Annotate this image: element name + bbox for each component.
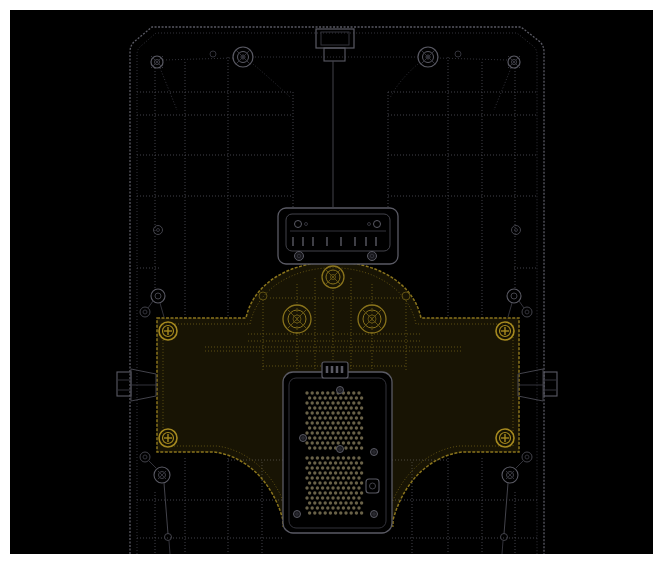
perforation-dot [337, 411, 340, 414]
perforation-dot [316, 411, 319, 414]
perforation-dot [316, 466, 319, 469]
perforation-dot [339, 461, 342, 464]
perforation-dot [329, 436, 332, 439]
perforation-dot [357, 496, 360, 499]
perforation-dot [355, 426, 358, 429]
perforation-dot [342, 486, 345, 489]
cad-wireframe-drawing[interactable] [0, 0, 653, 562]
perforation-dot [350, 501, 353, 504]
perforation-dot [360, 436, 363, 439]
perforation-dot [331, 486, 334, 489]
perforation-dot [324, 471, 327, 474]
perforation-dot [316, 401, 319, 404]
grille-screw [300, 435, 307, 442]
perforation-dot [313, 446, 316, 449]
perforation-dot [308, 416, 311, 419]
perforation-dot [342, 506, 345, 509]
perforation-dot [305, 431, 308, 434]
perforation-dot [360, 416, 363, 419]
perforation-dot [321, 401, 324, 404]
perforation-dot [357, 441, 360, 444]
perforation-dot [313, 471, 316, 474]
perforation-dot [357, 486, 360, 489]
perforation-dot [339, 436, 342, 439]
perforation-dot [305, 456, 308, 459]
perforation-dot [321, 496, 324, 499]
perforation-dot [342, 431, 345, 434]
perforation-dot [308, 461, 311, 464]
perforation-dot [339, 491, 342, 494]
perforation-dot [334, 491, 337, 494]
perforation-dot [331, 466, 334, 469]
perforation-dot [311, 506, 314, 509]
terminal-screw [295, 252, 304, 261]
aux-connector [366, 479, 379, 493]
perforation-dot [337, 421, 340, 424]
perforation-dot [334, 511, 337, 514]
perforation-dot [347, 466, 350, 469]
perforation-dot [347, 411, 350, 414]
perforation-dot [347, 486, 350, 489]
perforation-dot [311, 476, 314, 479]
perforation-dot [308, 471, 311, 474]
perforation-dot [331, 456, 334, 459]
perforation-dot [318, 501, 321, 504]
perforation-dot [311, 391, 314, 394]
perforation-dot [324, 416, 327, 419]
perforation-dot [331, 411, 334, 414]
perforation-dot [326, 401, 329, 404]
perforation-dot [347, 456, 350, 459]
perforation-dot [355, 416, 358, 419]
perforation-dot [331, 476, 334, 479]
perforation-dot [352, 441, 355, 444]
perforation-dot [305, 486, 308, 489]
perforation-dot [316, 431, 319, 434]
perforation-dot [357, 391, 360, 394]
perforation-dot [324, 396, 327, 399]
perforation-dot [329, 461, 332, 464]
perforation-dot [305, 506, 308, 509]
perforation-dot [329, 481, 332, 484]
perforation-dot [321, 391, 324, 394]
perforation-dot [344, 426, 347, 429]
perforation-dot [350, 396, 353, 399]
perforation-dot [355, 481, 358, 484]
terminal-screw [368, 252, 377, 261]
grille-screw [337, 387, 344, 394]
perforation-dot [339, 396, 342, 399]
perforation-dot [308, 406, 311, 409]
perforation-dot [360, 406, 363, 409]
perforation-dot [324, 511, 327, 514]
perforation-dot [321, 506, 324, 509]
perforation-dot [313, 416, 316, 419]
perforation-dot [347, 441, 350, 444]
perforation-dot [350, 481, 353, 484]
perforation-dot [313, 491, 316, 494]
perforation-dot [331, 506, 334, 509]
perforation-dot [318, 426, 321, 429]
perforation-dot [342, 411, 345, 414]
perforation-dot [331, 421, 334, 424]
perforation-dot [344, 406, 347, 409]
perforation-dot [360, 501, 363, 504]
perforation-dot [337, 506, 340, 509]
perforation-dot [311, 431, 314, 434]
perforation-dot [334, 406, 337, 409]
perforation-dot [331, 401, 334, 404]
perforation-dot [326, 391, 329, 394]
perforation-dot [313, 426, 316, 429]
perforation-dot [352, 456, 355, 459]
perforation-dot [311, 401, 314, 404]
perforation-dot [326, 431, 329, 434]
perforation-dot [313, 396, 316, 399]
perforation-dot [350, 406, 353, 409]
perforation-dot [329, 511, 332, 514]
perforation-dot [352, 506, 355, 509]
perforation-dot [308, 396, 311, 399]
perforation-dot [357, 411, 360, 414]
perforation-dot [360, 471, 363, 474]
perforation-dot [308, 501, 311, 504]
perforation-dot [311, 486, 314, 489]
perforation-dot [357, 421, 360, 424]
perforation-dot [326, 456, 329, 459]
perforation-dot [318, 491, 321, 494]
perforation-dot [357, 476, 360, 479]
perforation-dot [313, 511, 316, 514]
perforation-dot [316, 506, 319, 509]
perforation-dot [305, 496, 308, 499]
perforation-dot [355, 396, 358, 399]
perforation-dot [326, 506, 329, 509]
perforation-dot [329, 501, 332, 504]
perforation-dot [324, 446, 327, 449]
perforation-dot [316, 486, 319, 489]
perforation-dot [350, 511, 353, 514]
perforation-dot [339, 471, 342, 474]
perforation-dot [305, 441, 308, 444]
perforation-dot [316, 441, 319, 444]
perforation-dot [318, 471, 321, 474]
perforation-dot [334, 436, 337, 439]
perforation-dot [339, 426, 342, 429]
perforation-dot [313, 461, 316, 464]
perforation-dot [334, 396, 337, 399]
perforation-dot [352, 411, 355, 414]
perforation-dot [329, 471, 332, 474]
perforation-dot [339, 416, 342, 419]
perforation-dot [360, 426, 363, 429]
perforation-dot [347, 506, 350, 509]
perforation-dot [326, 466, 329, 469]
perforation-dot [329, 491, 332, 494]
perforation-dot [342, 421, 345, 424]
perforation-dot [352, 431, 355, 434]
perforation-dot [347, 421, 350, 424]
perforation-dot [334, 416, 337, 419]
perforation-dot [334, 501, 337, 504]
perforation-dot [337, 466, 340, 469]
perforation-dot [352, 486, 355, 489]
perforation-dot [326, 496, 329, 499]
perforation-dot [344, 481, 347, 484]
perforation-dot [326, 411, 329, 414]
perforation-dot [313, 501, 316, 504]
perforation-dot [355, 501, 358, 504]
perforation-dot [344, 491, 347, 494]
perforation-dot [316, 476, 319, 479]
perforation-dot [350, 471, 353, 474]
perforation-dot [324, 481, 327, 484]
perforation-dot [329, 446, 332, 449]
perforation-dot [344, 446, 347, 449]
perforation-dot [350, 416, 353, 419]
perforation-dot [321, 431, 324, 434]
perforation-dot [344, 501, 347, 504]
perforation-dot [318, 406, 321, 409]
perforation-dot [324, 406, 327, 409]
perforation-dot [321, 421, 324, 424]
perforation-dot [316, 421, 319, 424]
perforation-dot [357, 506, 360, 509]
perforation-dot [334, 471, 337, 474]
perforation-dot [316, 496, 319, 499]
perforation-dot [344, 436, 347, 439]
perforation-dot [344, 461, 347, 464]
perforation-dot [324, 426, 327, 429]
perforation-dot [326, 441, 329, 444]
perforation-dot [350, 461, 353, 464]
perforation-dot [360, 446, 363, 449]
perforation-dot [347, 401, 350, 404]
perforation-dot [331, 391, 334, 394]
perforation-dot [326, 476, 329, 479]
perforation-dot [337, 476, 340, 479]
perforation-dot [342, 441, 345, 444]
perforation-dot [347, 496, 350, 499]
perforation-dot [318, 396, 321, 399]
perforation-dot [305, 401, 308, 404]
perforation-dot [311, 456, 314, 459]
perforation-dot [337, 401, 340, 404]
perforation-dot [355, 511, 358, 514]
perforation-dot [321, 456, 324, 459]
perforation-dot [360, 461, 363, 464]
perforation-dot [350, 491, 353, 494]
perforation-dot [305, 466, 308, 469]
perforation-dot [308, 446, 311, 449]
perforation-dot [360, 481, 363, 484]
perforation-dot [342, 496, 345, 499]
perforation-dot [342, 466, 345, 469]
perforation-dot [329, 426, 332, 429]
perforation-dot [311, 466, 314, 469]
perforation-dot [352, 466, 355, 469]
perforation-dot [355, 436, 358, 439]
perforation-dot [355, 446, 358, 449]
image-viewer [0, 0, 653, 562]
perforation-dot [321, 476, 324, 479]
perforation-dot [324, 461, 327, 464]
perforation-dot [331, 441, 334, 444]
perforation-dot [334, 461, 337, 464]
perforation-dot [311, 421, 314, 424]
perforation-dot [344, 511, 347, 514]
perforation-dot [352, 401, 355, 404]
perforation-dot [355, 406, 358, 409]
perforation-dot [355, 461, 358, 464]
perforation-dot [316, 456, 319, 459]
perforation-dot [352, 391, 355, 394]
perforation-dot [355, 471, 358, 474]
perforation-dot [342, 476, 345, 479]
grille-screw [337, 446, 344, 453]
grille-screw [294, 511, 301, 518]
perforation-dot [339, 481, 342, 484]
perforation-dot [339, 406, 342, 409]
perforation-dot [334, 481, 337, 484]
perforation-dot [331, 431, 334, 434]
perforation-dot [305, 421, 308, 424]
perforation-dot [308, 491, 311, 494]
perforation-dot [352, 496, 355, 499]
perforation-dot [350, 426, 353, 429]
perforation-dot [344, 471, 347, 474]
perforation-dot [344, 416, 347, 419]
perforation-dot [352, 476, 355, 479]
perforation-dot [308, 511, 311, 514]
perforation-dot [318, 446, 321, 449]
perforation-dot [329, 396, 332, 399]
perforation-dot [324, 436, 327, 439]
perforation-dot [337, 431, 340, 434]
perforation-dot [308, 436, 311, 439]
perforation-dot [347, 476, 350, 479]
perforation-dot [357, 456, 360, 459]
perforation-dot [321, 466, 324, 469]
perforation-dot [337, 496, 340, 499]
perforation-dot [311, 441, 314, 444]
perforation-dot [339, 501, 342, 504]
perforation-dot [318, 461, 321, 464]
perforation-dot [360, 491, 363, 494]
perforation-dot [326, 421, 329, 424]
perforation-dot [360, 396, 363, 399]
perforation-dot [318, 436, 321, 439]
perforation-dot [311, 411, 314, 414]
perforation-dot [318, 511, 321, 514]
perforation-dot [321, 441, 324, 444]
perforation-dot [308, 426, 311, 429]
perforation-dot [305, 411, 308, 414]
grille-screw [371, 511, 378, 518]
perforation-dot [313, 481, 316, 484]
perforation-dot [357, 431, 360, 434]
perforation-dot [308, 481, 311, 484]
perforation-dot [334, 426, 337, 429]
grille-screw [371, 449, 378, 456]
perforation-dot [316, 391, 319, 394]
perforation-dot [318, 481, 321, 484]
perforation-dot [344, 396, 347, 399]
perforation-dot [331, 496, 334, 499]
perforation-dot [342, 456, 345, 459]
perforation-dot [347, 391, 350, 394]
perforation-dot [313, 406, 316, 409]
perforation-dot [355, 491, 358, 494]
perforation-dot [321, 411, 324, 414]
perforation-dot [350, 446, 353, 449]
perforation-dot [329, 406, 332, 409]
perforation-dot [318, 416, 321, 419]
perforation-dot [337, 486, 340, 489]
perforation-dot [342, 401, 345, 404]
perforation-dot [305, 476, 308, 479]
perforation-dot [324, 501, 327, 504]
perforation-dot [324, 491, 327, 494]
perforation-dot [311, 496, 314, 499]
perforation-dot [350, 436, 353, 439]
perforation-dot [357, 466, 360, 469]
perforation-dot [321, 486, 324, 489]
perforation-dot [326, 486, 329, 489]
perforation-dot [305, 391, 308, 394]
perforation-dot [313, 436, 316, 439]
perforation-dot [339, 511, 342, 514]
perforation-dot [329, 416, 332, 419]
perforation-dot [357, 401, 360, 404]
perforation-dot [337, 441, 340, 444]
perforation-dot [347, 431, 350, 434]
perforation-dot [360, 511, 363, 514]
perforation-dot [352, 421, 355, 424]
perforation-dot [337, 456, 340, 459]
